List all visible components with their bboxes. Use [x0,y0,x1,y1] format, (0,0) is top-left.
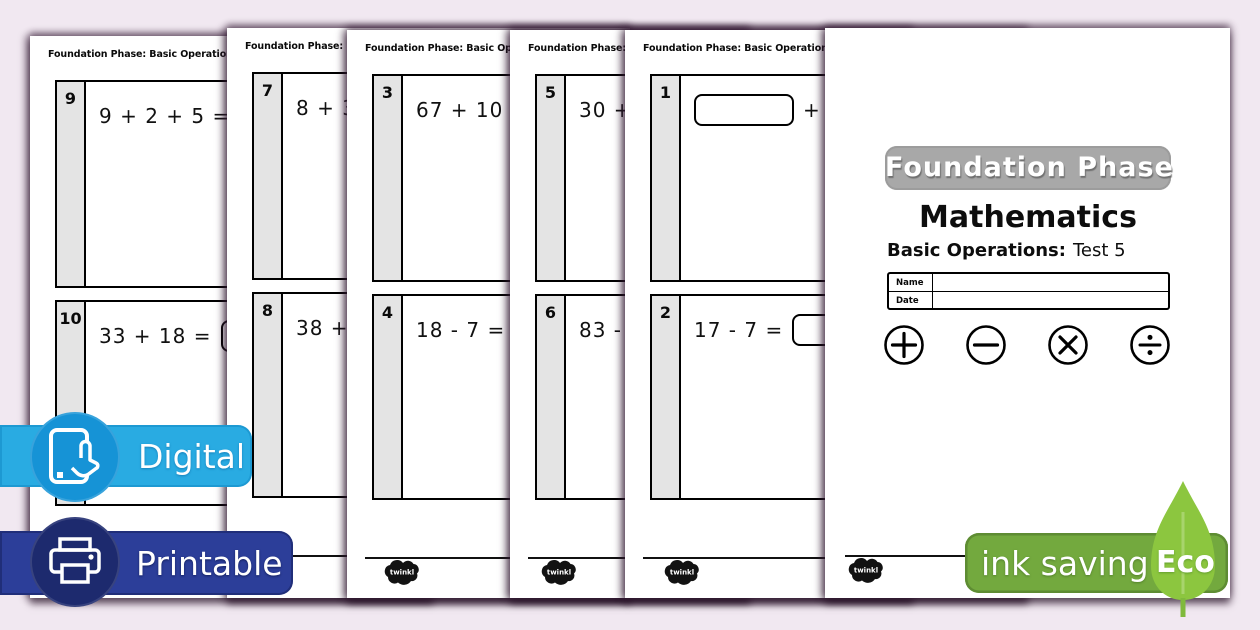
plus-icon [883,324,925,366]
twinkl-logo: twinkl [383,560,421,585]
svg-text:twinkl: twinkl [670,569,694,577]
question-number-column: 1 [652,76,681,280]
question-number: 7 [254,74,281,100]
name-date-table: Name Date [887,272,1170,310]
printable-badge-label: Printable [136,544,283,583]
name-label: Name [889,274,933,291]
question-number-column: 5 [537,76,566,280]
question-number: 3 [374,76,401,102]
question-number: 5 [537,76,564,102]
equation-text: 9 + 2 + 5 = [99,104,230,128]
equation-text: 33 + 18 = [99,324,212,348]
preview-canvas: Foundation Phase: Basic Operations Test … [0,0,1260,630]
question-number-column: 6 [537,296,566,498]
question-number: 8 [254,294,281,320]
question-number-column: 2 [652,296,681,498]
question-number-column: 3 [374,76,403,280]
multiply-icon [1047,324,1089,366]
cover-subtitle-test: Test 5 [1073,240,1126,261]
phase-badge: Foundation Phase [885,146,1171,190]
ink-saving-label: ink saving [981,544,1149,583]
tablet-touch-icon [47,426,103,488]
cover-subtitle-bold: Basic Operations: [887,240,1066,261]
question-number: 2 [652,296,679,322]
question-number-column: 7 [254,74,283,278]
equation-text: 17 - 7 = [694,318,783,342]
question-number: 1 [652,76,679,102]
date-row: Date [889,291,1168,308]
svg-text:twinkl: twinkl [547,569,571,577]
printer-icon [47,536,103,588]
twinkl-logo: twinkl [847,558,885,583]
equation-text: 38 + [296,316,349,340]
minus-icon [965,324,1007,366]
equation-text: 18 - 7 = [416,318,505,342]
digital-badge-label: Digital [138,437,245,476]
answer-box [694,94,794,126]
question-number: 10 [57,302,84,328]
question-number-column: 4 [374,296,403,498]
cover-subtitle: Basic Operations:Test 5 [887,240,1126,261]
name-row: Name [889,274,1168,291]
date-label: Date [889,292,933,308]
question-number-column: 9 [57,82,86,286]
question-number: 9 [57,82,84,108]
operations-row [883,324,1171,366]
eco-label: Eco [1156,545,1214,580]
question-number: 4 [374,296,401,322]
digital-badge-circle[interactable] [30,412,120,502]
twinkl-logo: twinkl [540,560,578,585]
cover-subject-title: Mathematics [885,200,1171,235]
twinkl-logo: twinkl [663,560,701,585]
question-number-column: 8 [254,294,283,496]
divide-icon [1129,324,1171,366]
question-number: 6 [537,296,564,322]
svg-text:twinkl: twinkl [854,567,878,575]
svg-text:twinkl: twinkl [390,569,414,577]
printable-badge-circle[interactable] [30,517,120,607]
